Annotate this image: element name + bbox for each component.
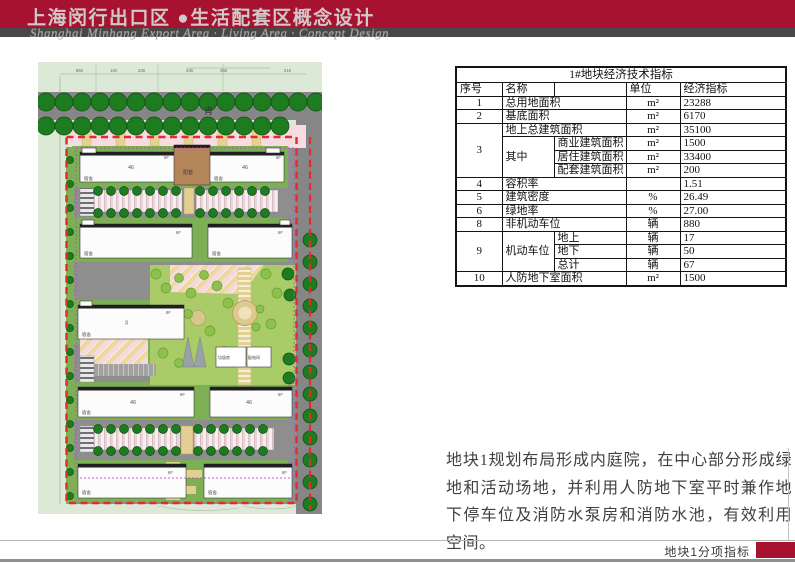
economic-indicators-table: 1#地块经济技术指标 序号 名称 单位 经济指标 1 总用地面积 m² 2328… xyxy=(455,66,787,287)
cell-unit: m² xyxy=(626,164,680,178)
cell-name: 非机动车位 xyxy=(502,218,626,232)
cell-name: 建筑密度 xyxy=(502,191,626,205)
cell-name: 其中 xyxy=(502,137,554,178)
table-row: 8 非机动车位 辆 880 xyxy=(456,218,786,232)
cell-no: 8 xyxy=(456,218,502,232)
cell-value: 50 xyxy=(680,245,786,259)
cell-unit: 辆 xyxy=(626,218,680,232)
table-row: 1 总用地面积 m² 23288 xyxy=(456,96,786,110)
dim-number: 850 xyxy=(76,68,84,73)
footer-section-label: 地块1分项指标 xyxy=(664,543,750,560)
core-building-label: 配套 xyxy=(183,169,193,176)
table-row: 9 机动车位 地上 辆 17 xyxy=(456,231,786,245)
cell-unit: 辆 xyxy=(626,231,680,245)
cell-value: 6170 xyxy=(680,110,786,124)
cell-subname: 配套建筑面积 xyxy=(554,164,626,178)
col-header-name-spacer xyxy=(554,83,626,97)
cell-subname: 总计 xyxy=(554,258,626,272)
floors-label: 6F xyxy=(166,310,171,315)
dorm-label: 宿舍 xyxy=(212,250,221,257)
table-row: 其中 商业建筑面积 m² 1500 xyxy=(456,137,786,151)
cell-unit: % xyxy=(626,204,680,218)
floors-label: 6F xyxy=(168,470,173,475)
cell-value: 67 xyxy=(680,258,786,272)
cell-unit: m² xyxy=(626,110,680,124)
site-plan: 850 140 238 436 258 216 xyxy=(38,62,322,514)
right-edge-hairline xyxy=(788,448,789,540)
cell-no: 5 xyxy=(456,191,502,205)
col-header-unit: 单位 xyxy=(626,83,680,97)
dim-number: 140 xyxy=(110,68,118,73)
table-title: 1#地块经济技术指标 xyxy=(456,67,786,83)
cell-no: 1 xyxy=(456,96,502,110)
cell-unit: m² xyxy=(626,137,680,151)
cell-value: 17 xyxy=(680,231,786,245)
col-header-name: 名称 xyxy=(502,83,554,97)
cell-name: 机动车位 xyxy=(502,231,554,272)
floors-label: 6F xyxy=(176,230,181,235)
cell-value: 200 xyxy=(680,164,786,178)
dim-number: 216 xyxy=(284,68,292,73)
cell-name: 容积率 xyxy=(502,177,626,191)
table-title-row: 1#地块经济技术指标 xyxy=(456,67,786,83)
cell-unit: % xyxy=(626,191,680,205)
cell-name: 基底面积 xyxy=(502,110,626,124)
page-subtitle: Shanghai Minhang Export Area · Living Ar… xyxy=(30,25,389,41)
cell-name: 绿地率 xyxy=(502,204,626,218)
cell-unit: m² xyxy=(626,150,680,164)
cell-unit: m² xyxy=(626,96,680,110)
col-header-no: 序号 xyxy=(456,83,502,97)
cell-no: 4 xyxy=(456,177,502,191)
cell-value: 33400 xyxy=(680,150,786,164)
floors-label: 6F xyxy=(164,155,169,160)
cell-unit: 辆 xyxy=(626,258,680,272)
cell-name: 总用地面积 xyxy=(502,96,626,110)
floors-label: 6F xyxy=(278,230,283,235)
footer-bottom-bar xyxy=(0,559,795,562)
dim-number: 436 xyxy=(186,68,194,73)
cell-value: 880 xyxy=(680,218,786,232)
cell-unit: 辆 xyxy=(626,245,680,259)
trash-room-label: 垃圾房 xyxy=(218,354,230,360)
power-room-label: 配电间 xyxy=(248,354,260,360)
cell-subname: 地上 xyxy=(554,231,626,245)
dorm-label: 宿舍 xyxy=(84,175,93,182)
cell-no: 6 xyxy=(456,204,502,218)
table-row: 6 绿地率 % 27.00 xyxy=(456,204,786,218)
cell-value: 1500 xyxy=(680,272,786,286)
dorm-label: 宿舍 xyxy=(82,331,91,338)
building-length-label: 46 xyxy=(242,165,248,171)
cell-value: 1.51 xyxy=(680,177,786,191)
floors-label: 6F xyxy=(276,155,281,160)
cell-unit: m² xyxy=(626,272,680,286)
width-label: 15 xyxy=(124,320,129,325)
cell-no: 9 xyxy=(456,231,502,272)
building-length-label: 46 xyxy=(130,400,136,406)
building-length-label: 46 xyxy=(128,165,134,171)
footer-hairline xyxy=(0,540,795,541)
dim-number: 238 xyxy=(138,68,146,73)
table-row: 4 容积率 1.51 xyxy=(456,177,786,191)
cell-name: 人防地下室面积 xyxy=(502,272,626,286)
road-name-label: 肖 xyxy=(204,105,213,116)
cell-subname: 居住建筑面积 xyxy=(554,150,626,164)
cell-unit xyxy=(626,177,680,191)
table-header-row: 序号 名称 单位 经济指标 xyxy=(456,83,786,97)
cell-no: 2 xyxy=(456,110,502,124)
col-header-value: 经济指标 xyxy=(680,83,786,97)
cell-unit: m² xyxy=(626,123,680,137)
dorm-label: 宿舍 xyxy=(208,489,217,496)
footer-red-block xyxy=(756,542,795,558)
floors-label: 6F xyxy=(282,470,287,475)
table-row: 3 地上总建筑面积 m² 35100 xyxy=(456,123,786,137)
dorm-label: 宿舍 xyxy=(84,250,93,257)
cell-value: 23288 xyxy=(680,96,786,110)
dim-number: 258 xyxy=(220,68,228,73)
cell-name: 地上总建筑面积 xyxy=(502,123,626,137)
dorm-label: 宿舍 xyxy=(82,409,91,416)
cell-value: 1500 xyxy=(680,137,786,151)
cell-value: 26.49 xyxy=(680,191,786,205)
table-row: 5 建筑密度 % 26.49 xyxy=(456,191,786,205)
floors-label: 6F xyxy=(278,392,283,397)
dorm-label: 宿舍 xyxy=(214,175,223,182)
cell-value: 27.00 xyxy=(680,204,786,218)
cell-subname: 商业建筑面积 xyxy=(554,137,626,151)
cell-no: 3 xyxy=(456,123,502,177)
table-row: 2 基底面积 m² 6170 xyxy=(456,110,786,124)
cell-no: 10 xyxy=(456,272,502,286)
floors-label: 6F xyxy=(180,392,185,397)
building-length-label: 46 xyxy=(246,400,252,406)
cell-subname: 地下 xyxy=(554,245,626,259)
cell-value: 35100 xyxy=(680,123,786,137)
table-row: 10 人防地下室面积 m² 1500 xyxy=(456,272,786,286)
dorm-label: 宿舍 xyxy=(82,489,91,496)
